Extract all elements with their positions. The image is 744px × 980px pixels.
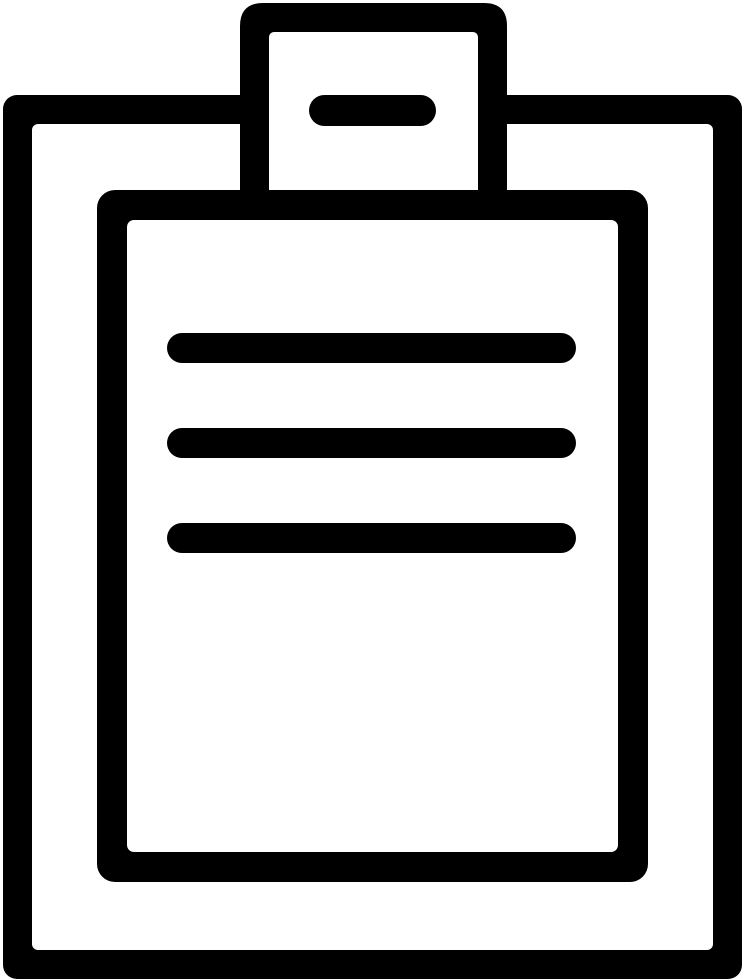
document-text-line-1: [167, 333, 576, 363]
clip-handle-dash: [309, 95, 436, 126]
document-text-line-2: [167, 428, 576, 458]
clipboard-icon-svg: [0, 0, 744, 980]
document-text-line-3: [167, 523, 576, 553]
clipboard-icon: [0, 0, 744, 980]
